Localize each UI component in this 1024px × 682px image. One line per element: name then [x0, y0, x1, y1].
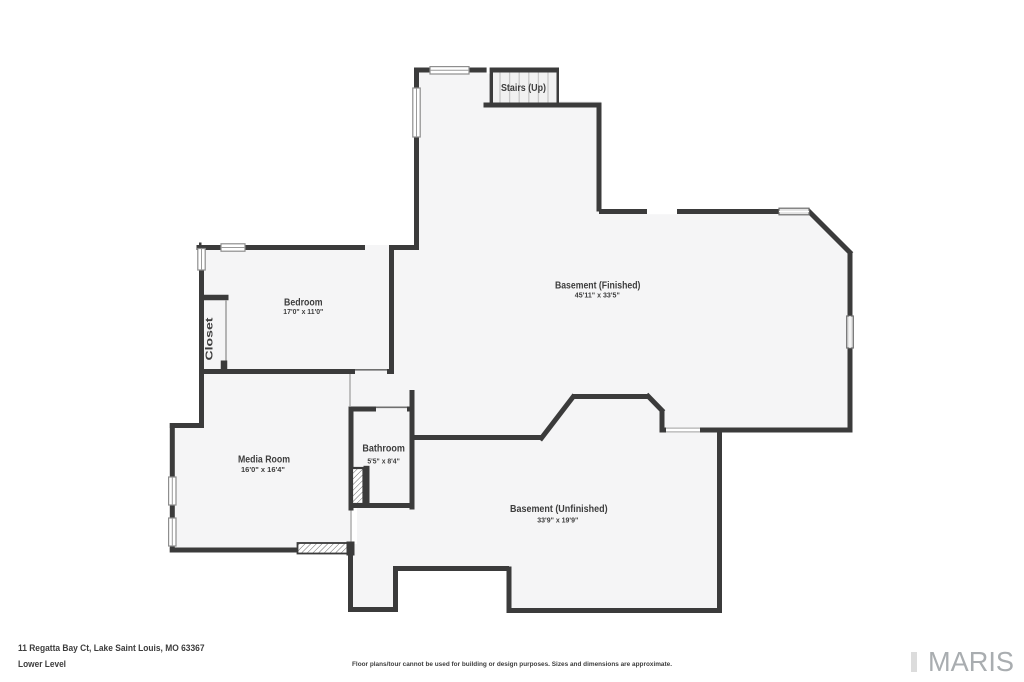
- svg-text:Lower Level: Lower Level: [18, 659, 66, 669]
- svg-text:5'5" x 8'4": 5'5" x 8'4": [367, 457, 400, 466]
- svg-text:11 Regatta Bay Ct, Lake Saint: 11 Regatta Bay Ct, Lake Saint Louis, MO …: [18, 643, 205, 653]
- svg-text:16'0" x 16'4": 16'0" x 16'4": [241, 465, 285, 474]
- svg-text:Bathroom: Bathroom: [362, 444, 405, 455]
- svg-text:Basement (Unfinished): Basement (Unfinished): [510, 504, 608, 515]
- svg-text:Stairs (Up): Stairs (Up): [501, 83, 546, 94]
- svg-text:45'11" x 33'5": 45'11" x 33'5": [575, 290, 620, 299]
- svg-text:MARIS: MARIS: [928, 646, 1014, 677]
- svg-text:33'9" x 19'9": 33'9" x 19'9": [537, 516, 578, 525]
- svg-text:Floor plans/tour cannot be use: Floor plans/tour cannot be used for buil…: [352, 661, 672, 668]
- svg-text:Media Room: Media Room: [238, 455, 290, 466]
- svg-text:17'0" x 11'0": 17'0" x 11'0": [283, 307, 323, 316]
- svg-text:Closet: Closet: [205, 317, 216, 361]
